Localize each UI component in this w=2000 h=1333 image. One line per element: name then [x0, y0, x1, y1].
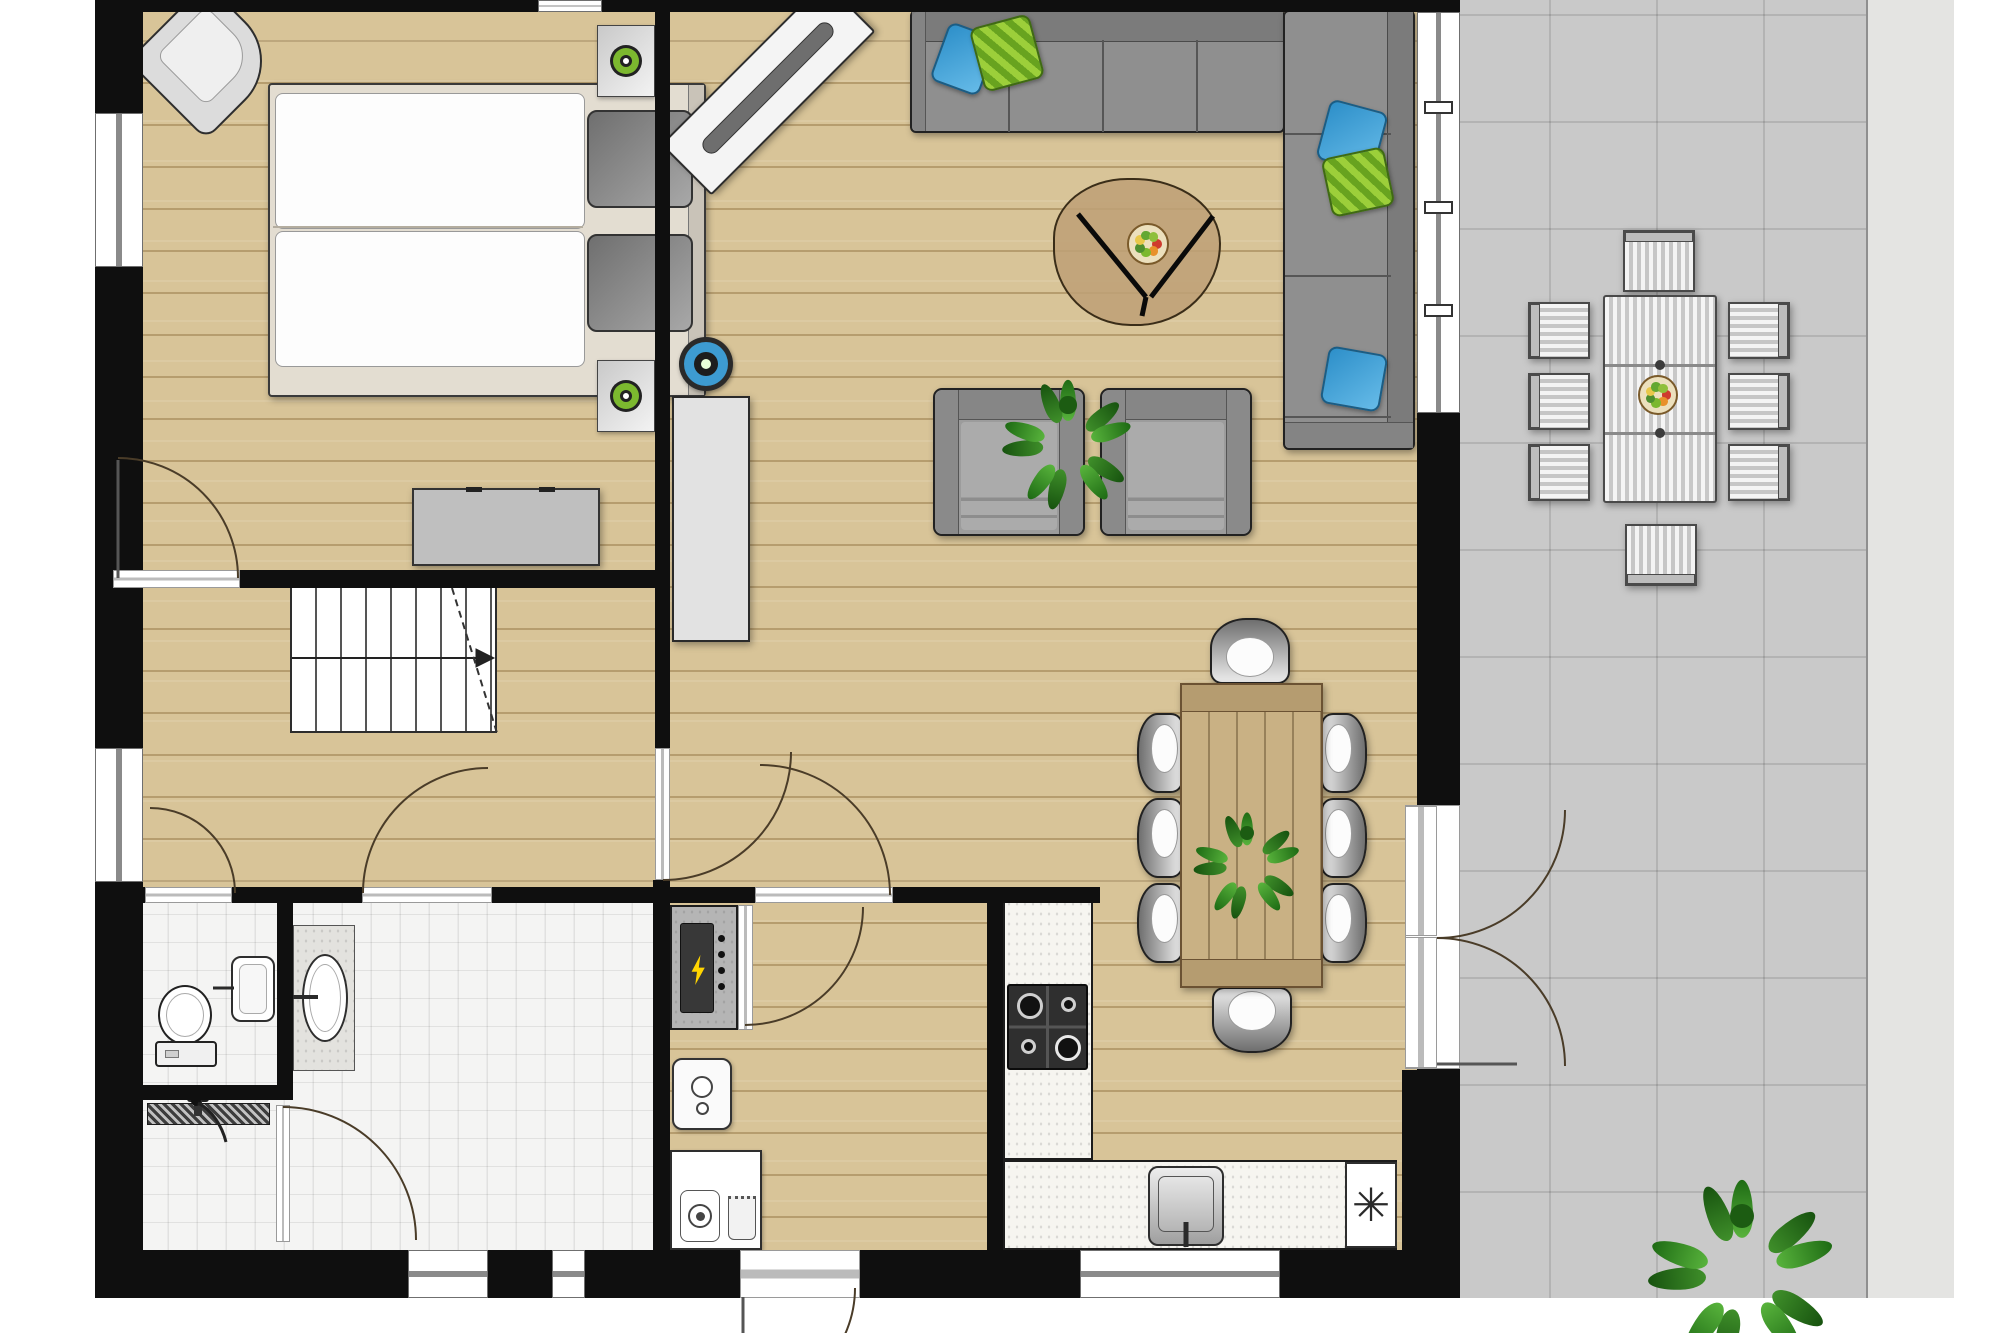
- floor-plan: ✳: [0, 0, 2000, 1333]
- stairs-cut-line: [452, 588, 497, 733]
- stairs-arrow: [476, 649, 494, 667]
- door-arc-meter: [745, 907, 863, 1025]
- door-arc-french-upper: [1437, 810, 1565, 938]
- door-arc-living-hall: [760, 765, 890, 895]
- door-arc-toilet: [150, 808, 235, 893]
- coffee-table-leg-right: [1151, 216, 1213, 297]
- coffee-table-leg-left: [1078, 214, 1146, 297]
- door-arc-hall-living: [663, 752, 791, 880]
- shower-hose: [198, 1103, 226, 1142]
- coffee-table-leg-foot: [1142, 297, 1146, 316]
- door-arc-french-lower: [1437, 938, 1565, 1066]
- door-arc-bedroom: [118, 458, 238, 578]
- door-arc-shower: [283, 1107, 416, 1240]
- door-arc-bathroom: [363, 768, 488, 893]
- door-arc-back-door: [743, 1288, 855, 1333]
- plan-linework: [0, 0, 2000, 1333]
